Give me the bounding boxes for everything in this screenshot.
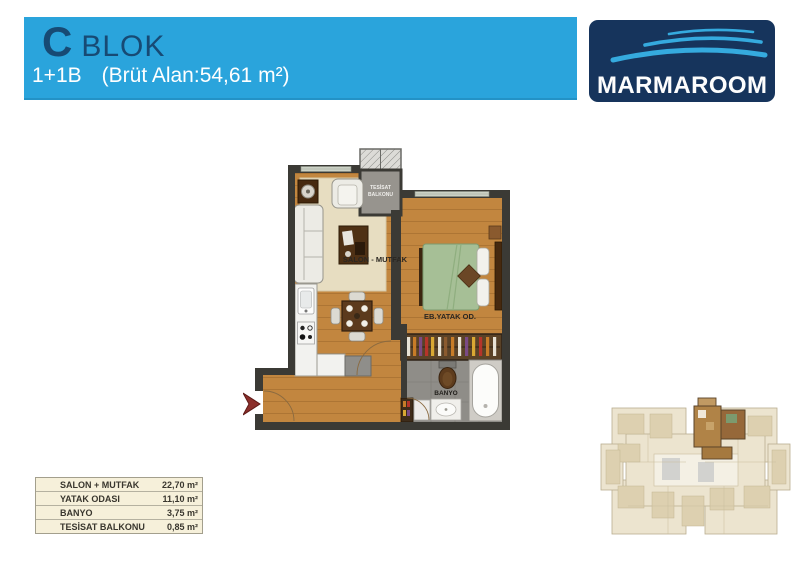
- gross-area: (Brüt Alan:54,61 m²): [102, 64, 290, 88]
- stove: [298, 322, 315, 344]
- entry-arrow-icon: [243, 393, 260, 415]
- block-title: C BLOK: [42, 19, 165, 65]
- bathroom-sink: [431, 399, 461, 420]
- unit-subtitle: 1+1B (Brüt Alan:54,61 m²): [32, 64, 290, 88]
- room-label-salon: SALON - MUTFAK: [343, 255, 408, 264]
- block-word: BLOK: [81, 30, 165, 64]
- sofa: [294, 205, 323, 283]
- area-name: TESİSAT BALKONU: [60, 522, 145, 532]
- room-label-tesisat-2: BALKONU: [368, 192, 393, 198]
- room-label-tesisat-1: TESİSAT: [370, 184, 391, 191]
- table-row: TESİSAT BALKONU 0,85 m²: [36, 520, 202, 533]
- nightstand: [489, 226, 501, 239]
- areas-table: SALON + MUTFAK 22,70 m² YATAK ODASI 11,1…: [35, 477, 203, 534]
- area-value: 3,75 m²: [167, 508, 198, 518]
- header-banner: C BLOK 1+1B (Brüt Alan:54,61 m²): [24, 17, 577, 100]
- table-row: SALON + MUTFAK 22,70 m²: [36, 478, 202, 492]
- room-label-banyo: BANYO: [434, 390, 457, 397]
- bathtub: [469, 360, 502, 421]
- area-name: BANYO: [60, 508, 93, 518]
- side-table-lamp: [298, 180, 318, 203]
- table-row: YATAK ODASI 11,10 m²: [36, 492, 202, 506]
- shoe-cabinet: [401, 398, 413, 422]
- floor-plan: SALON - MUTFAK EB.YATAK OD. TESİSAT BALK…: [243, 138, 518, 448]
- room-label-bedroom: EB.YATAK OD.: [424, 312, 476, 321]
- toilet: [439, 361, 456, 389]
- unit-type: 1+1B: [32, 64, 82, 88]
- logo-text: MARMAROOM: [597, 72, 767, 99]
- logo-waves-icon: MARMAROOM: [589, 20, 775, 102]
- page: C BLOK 1+1B (Brüt Alan:54,61 m²) MARMARO…: [0, 0, 800, 566]
- area-name: SALON + MUTFAK: [60, 480, 139, 490]
- marmaroom-logo: MARMAROOM: [589, 20, 775, 102]
- area-name: YATAK ODASI: [60, 494, 120, 504]
- area-value: 22,70 m²: [162, 480, 198, 490]
- area-value: 0,85 m²: [167, 522, 198, 532]
- entry-cabinet: [414, 400, 430, 420]
- table-row: BANYO 3,75 m²: [36, 506, 202, 520]
- area-value: 11,10 m²: [162, 494, 198, 504]
- block-letter: C: [42, 19, 72, 65]
- floor-overview-map: [598, 392, 793, 548]
- armchair: [332, 179, 363, 208]
- wardrobe: [401, 334, 502, 360]
